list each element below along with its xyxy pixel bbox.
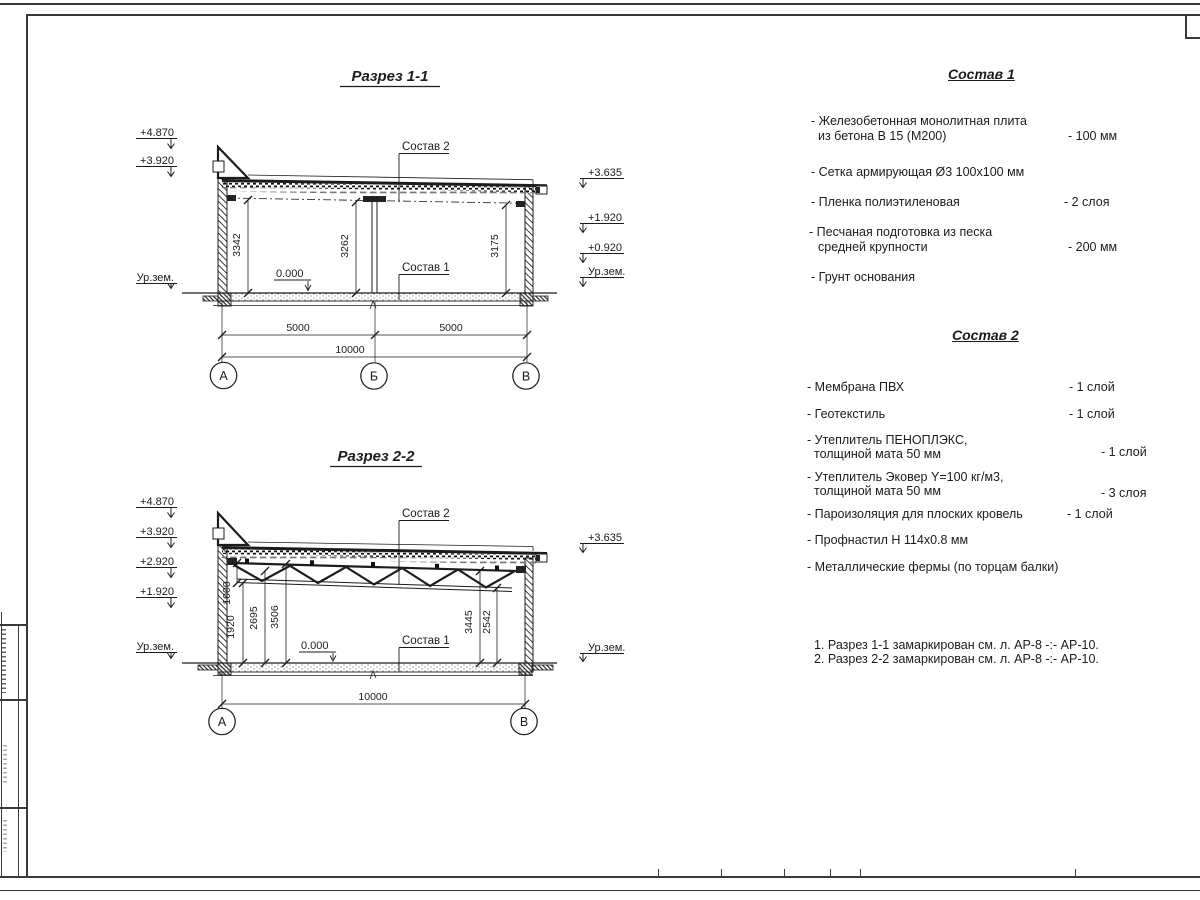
leader-label: Состав 1 bbox=[402, 262, 450, 274]
sostav2-item-line: - Геотекстиль bbox=[807, 407, 885, 421]
note-line: 2. Разрез 2-2 замаркирован см. л. АР-8 -… bbox=[814, 652, 1099, 666]
ground-level-label: Ур.зем. bbox=[588, 266, 625, 278]
dim-label: 5000 bbox=[439, 322, 463, 334]
bottom-dimensions: 5000 5000 10000 bbox=[218, 301, 531, 362]
sostav2-item-line: - Утеплитель Эковер Y=100 кг/м3, bbox=[807, 470, 1003, 484]
sostav2-item-line: толщиной мата 50 мм bbox=[814, 447, 941, 461]
eaves-box-fill bbox=[536, 187, 540, 193]
note-line: 1. Разрез 1-1 замаркирован см. л. АР-8 -… bbox=[814, 638, 1099, 652]
titleblock-tick bbox=[721, 869, 722, 877]
leader-sostav2: Состав 2 bbox=[399, 508, 450, 585]
sostav1-item-line: из бетона В 15 (М200) bbox=[818, 129, 946, 143]
footing bbox=[520, 293, 533, 306]
sostav1-item-line: - Грунт основания bbox=[811, 270, 915, 284]
dim-label: 5000 bbox=[286, 322, 310, 334]
leader-label: Состав 2 bbox=[402, 508, 450, 520]
level-label: +2.920 bbox=[140, 556, 174, 568]
beam-bracket-right bbox=[516, 201, 525, 207]
footing bbox=[519, 663, 532, 675]
plinth-stub bbox=[533, 296, 548, 301]
level-label: +4.870 bbox=[140, 127, 174, 139]
stamp-vertical-text bbox=[3, 745, 7, 785]
sostav2-item-value: - 1 слой bbox=[1069, 380, 1115, 394]
plinth-stub bbox=[198, 665, 218, 670]
zero-level-mark: 0.000 bbox=[274, 268, 311, 291]
eaves-box-fill bbox=[536, 555, 540, 561]
level-label: +0.920 bbox=[588, 242, 622, 254]
zero-label: 0.000 bbox=[301, 640, 329, 652]
dim-label: 10000 bbox=[335, 344, 364, 356]
axis-label: В bbox=[522, 370, 530, 384]
parapet-ledge bbox=[213, 161, 224, 172]
sostav2-item-value: - 3 слоя bbox=[1101, 486, 1146, 500]
frame-bottom-border bbox=[0, 876, 1200, 878]
dim-label: 2695 bbox=[248, 606, 260, 630]
sostav1-item-value: - 200 мм bbox=[1068, 240, 1117, 254]
frame-left-border bbox=[26, 14, 28, 878]
zero-label: 0.000 bbox=[276, 268, 304, 280]
stamp-divider bbox=[18, 625, 19, 878]
beam-bracket-left bbox=[227, 195, 236, 201]
titleblock-tick bbox=[658, 869, 659, 877]
vertical-dimension: 3342 3262 3175 bbox=[231, 196, 510, 297]
sostav1-item-line: - Сетка армирующая Ø3 100х100 мм bbox=[811, 165, 1024, 179]
stamp-row-line-3 bbox=[0, 807, 27, 809]
sostav2-title: Состав 2 bbox=[952, 327, 1019, 343]
ground-level-label: Ур.зем. bbox=[588, 642, 625, 654]
roof-cap-line bbox=[248, 175, 533, 180]
plinth-stub bbox=[203, 296, 218, 301]
format-box-bottom-line bbox=[1185, 37, 1200, 39]
purlin-clip bbox=[310, 560, 314, 565]
sostav1-item-value: - 2 слоя bbox=[1064, 195, 1109, 209]
right-wall bbox=[525, 558, 533, 663]
axis-bubbles: А В bbox=[209, 708, 537, 734]
stamp-row-line-1 bbox=[0, 624, 27, 626]
sostav1-item-line: - Песчаная подготовка из песка bbox=[809, 225, 992, 239]
sostav1-item-value: - 100 мм bbox=[1068, 129, 1117, 143]
purlin-clip bbox=[245, 559, 249, 564]
axis-label: В bbox=[520, 715, 528, 729]
footing bbox=[218, 663, 231, 675]
titleblock-tick bbox=[830, 869, 831, 877]
dim-label: 3445 bbox=[463, 610, 475, 634]
level-mark: +3.635 +1.920 +0.920 Ур.зем. bbox=[580, 167, 626, 287]
stamp-row-line-2 bbox=[0, 699, 27, 701]
level-mark: +4.870 +3.920 +2.920 +1.920 Ур.зем. bbox=[136, 496, 177, 659]
leader-label: Состав 2 bbox=[402, 141, 450, 153]
column-capital bbox=[363, 196, 386, 202]
dim-label: 3175 bbox=[489, 234, 501, 258]
sostav1-item-line: - Железобетонная монолитная плита bbox=[811, 114, 1027, 128]
sostav2-item-value: - 1 слой bbox=[1069, 407, 1115, 421]
dim-label: 3342 bbox=[231, 233, 243, 257]
sostav1-item-line: средней крупности bbox=[818, 240, 928, 254]
sostav2-item-line: - Утеплитель ПЕНОПЛЭКС, bbox=[807, 433, 967, 447]
drawing-sheet: Разрез 1-1 +4.870 +3.920 Ур.зем. +3.635 … bbox=[0, 0, 1200, 900]
section1-title: Разрез 1-1 bbox=[351, 68, 428, 85]
format-box-left-line bbox=[1185, 14, 1187, 38]
sostav1-item-line: - Пленка полиэтиленовая bbox=[811, 195, 960, 209]
level-label: +1.920 bbox=[588, 212, 622, 224]
level-label: +3.635 bbox=[588, 532, 622, 544]
dim-label: 1920 bbox=[225, 615, 237, 639]
dim-label: 2542 bbox=[481, 610, 493, 634]
zero-level-mark: 0.000 bbox=[299, 640, 336, 661]
section-1-1-drawing: Разрез 1-1 +4.870 +3.920 Ур.зем. +3.635 … bbox=[130, 55, 660, 400]
titleblock-tick bbox=[1075, 869, 1076, 877]
axis-bubbles: А Б В bbox=[210, 362, 539, 389]
section2-title: Разрез 2-2 bbox=[337, 448, 415, 465]
level-mark: +3.635 Ур.зем. bbox=[580, 532, 626, 662]
sostav2-item-line: толщиной мата 50 мм bbox=[814, 484, 941, 498]
floor-slab bbox=[218, 663, 533, 672]
purlin-clip bbox=[435, 564, 439, 569]
sostav2-item-line: - Профнастил Н 114х0.8 мм bbox=[807, 533, 968, 547]
level-label: +3.635 bbox=[588, 167, 622, 179]
footing bbox=[218, 293, 231, 306]
sostav1-title: Состав 1 bbox=[948, 66, 1015, 82]
dim-label: 10000 bbox=[358, 691, 387, 703]
truss-bearing-right bbox=[516, 566, 526, 573]
right-wall bbox=[525, 186, 533, 293]
parapet-ledge bbox=[213, 528, 224, 539]
ground-level-label: Ур.зем. bbox=[137, 641, 174, 653]
dim-label: 3262 bbox=[339, 234, 351, 258]
sheet-outer-top-line bbox=[0, 3, 1200, 5]
axis-label: А bbox=[218, 715, 227, 729]
level-label: +3.920 bbox=[140, 155, 174, 167]
sostav2-item-value: - 1 слой bbox=[1101, 445, 1147, 459]
dim-label: 3506 bbox=[269, 605, 281, 629]
sostav2-item-line: - Металлические фермы (по торцам балки) bbox=[807, 560, 1058, 574]
bottom-dimensions: 10000 bbox=[218, 672, 529, 708]
section-2-2-drawing: Разрез 2-2 +4.870 +3.920 +2.920 +1.920 У… bbox=[130, 430, 660, 760]
axis-label: А bbox=[219, 369, 228, 383]
stamp-vertical-text bbox=[3, 820, 7, 852]
titleblock-tick bbox=[784, 869, 785, 877]
stamp-vertical-text bbox=[2, 629, 6, 693]
level-label: +3.920 bbox=[140, 526, 174, 538]
level-mark: +4.870 +3.920 Ур.зем. bbox=[136, 127, 177, 289]
sostav2-item-value: - 1 слой bbox=[1067, 507, 1113, 521]
level-label: +1.920 bbox=[140, 586, 174, 598]
axis-label: Б bbox=[370, 370, 378, 384]
floor-slab bbox=[218, 293, 533, 301]
left-wall bbox=[218, 178, 227, 293]
dim-label: 1000 bbox=[221, 581, 233, 605]
plinth-stub bbox=[533, 665, 553, 670]
titleblock-tick bbox=[860, 869, 861, 877]
level-label: +4.870 bbox=[140, 496, 174, 508]
purlin-clip bbox=[371, 562, 375, 567]
roof-cap-line bbox=[248, 542, 533, 547]
sheet-outer-bottom-line bbox=[0, 890, 1200, 891]
frame-top-border bbox=[27, 14, 1200, 16]
ground-level-label: Ур.зем. bbox=[137, 272, 174, 284]
leader-label: Состав 1 bbox=[402, 635, 450, 647]
sostav2-item-line: - Мембрана ПВХ bbox=[807, 380, 904, 394]
purlin-clip bbox=[495, 566, 499, 571]
sostav2-item-line: - Пароизоляция для плоских кровель bbox=[807, 507, 1023, 521]
